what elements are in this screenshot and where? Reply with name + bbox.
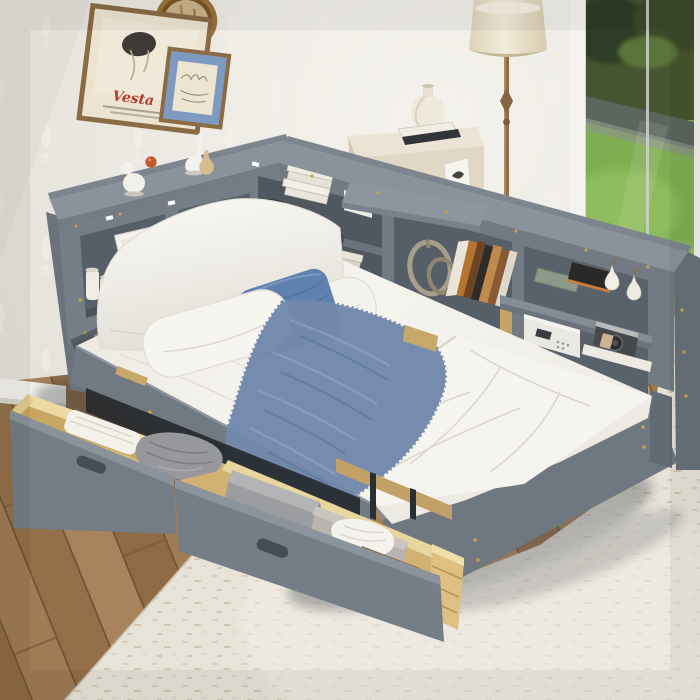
blue-mat-sketch-frame [159,46,232,129]
bedroom-photo: Vesta [0,0,700,700]
scene-illustration: Vesta [0,0,700,700]
orange-ball [145,156,156,167]
